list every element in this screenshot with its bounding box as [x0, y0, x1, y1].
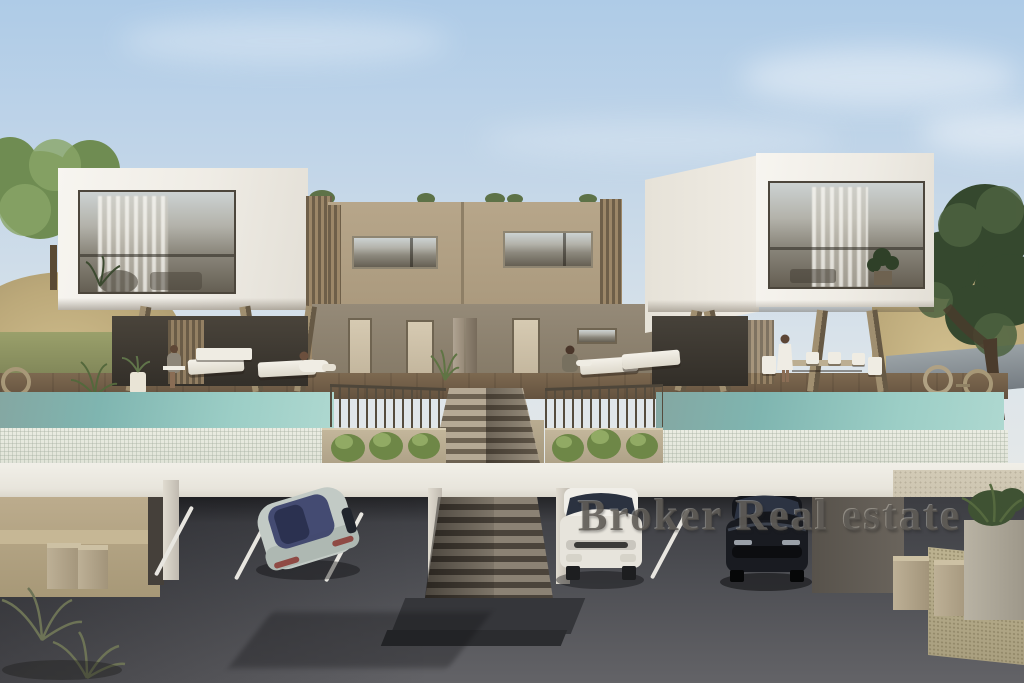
real-estate-render: Broker Real estate	[0, 0, 1024, 683]
concrete-bin	[893, 556, 929, 610]
duplex-seam	[461, 202, 464, 304]
concrete-planter	[964, 520, 1024, 620]
watermark-text: Broker Real estate	[578, 490, 962, 541]
entry-door	[348, 318, 372, 380]
planter-plant-right	[958, 478, 1024, 534]
person-seated-center	[552, 342, 596, 392]
center-slats-leftedge	[328, 205, 341, 304]
dining-chair	[852, 353, 865, 365]
cast-shadow	[228, 612, 492, 668]
interior-silhouette	[80, 256, 234, 292]
planter-shrubs-right	[548, 416, 664, 466]
right-volume-window	[768, 181, 925, 289]
outdoor-sofa	[196, 348, 252, 360]
interior-silhouette	[770, 239, 923, 287]
window-mullion	[563, 233, 566, 268]
dining-chair	[868, 357, 882, 375]
center-window-right	[503, 231, 593, 268]
shrubs-bottom-left	[0, 570, 152, 683]
left-volume-soffit	[58, 298, 308, 310]
dining-chair	[806, 352, 819, 364]
cloud	[120, 18, 450, 64]
pool-left-tile-wall	[0, 428, 334, 468]
pool-left-water	[0, 392, 334, 430]
potted-palm	[430, 348, 460, 382]
car-silver	[240, 478, 380, 588]
slat-infill	[748, 320, 774, 384]
person-standing-robe	[774, 332, 796, 386]
wall-ledge	[0, 530, 150, 544]
center-window-left	[352, 236, 438, 269]
person-seated-left	[158, 340, 194, 396]
cloud	[740, 48, 1020, 106]
dining-chair	[828, 352, 841, 364]
left-volume-window	[78, 190, 236, 294]
planter-shrubs-left	[326, 418, 446, 466]
pool-right-water	[656, 392, 1004, 432]
window-mullion	[410, 238, 413, 269]
